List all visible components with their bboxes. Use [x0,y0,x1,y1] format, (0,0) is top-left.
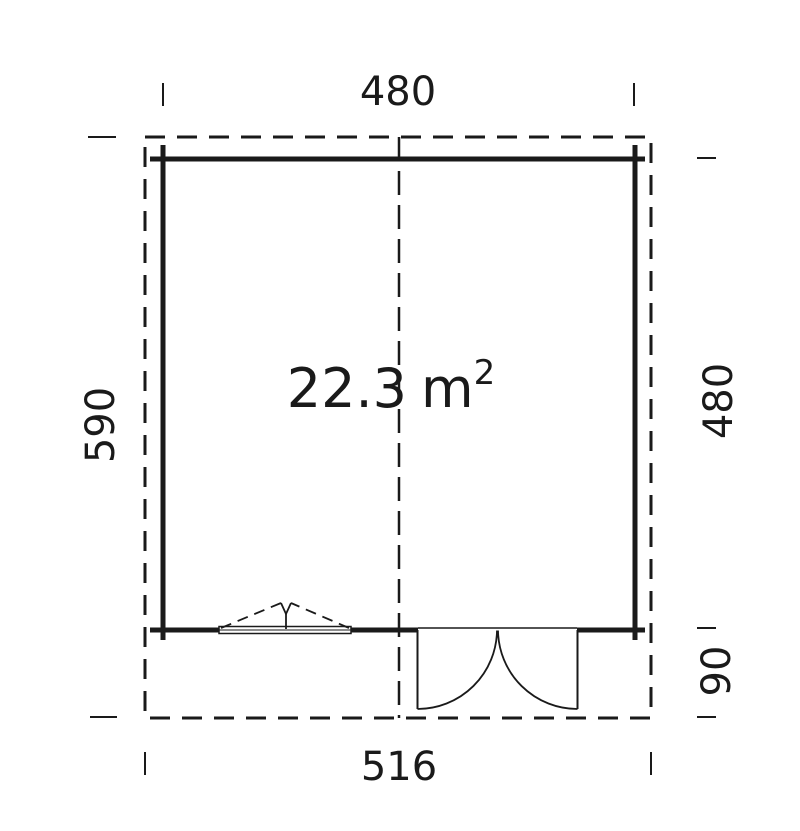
area-unit: m [421,357,474,420]
dimension-width-top: 480 [360,72,436,112]
dimension-porch-depth: 90 [697,646,737,697]
floor-plan-canvas: 480 590 480 90 516 22.3m2 [0,0,800,831]
window-swing-dash-left [221,603,281,628]
door-right-swing-arc [498,631,578,710]
area-value: 22.3 [287,357,407,420]
window-swing-dash-right [291,603,349,628]
area-label: 22.3m2 [287,362,495,416]
window-swing-apex-notch [281,603,291,614]
dimension-width-bottom: 516 [361,747,437,787]
dimension-depth-right: 480 [699,363,739,439]
dimension-depth-left: 590 [81,387,121,463]
door-left-swing-arc [418,631,498,710]
area-exponent: 2 [474,353,496,393]
